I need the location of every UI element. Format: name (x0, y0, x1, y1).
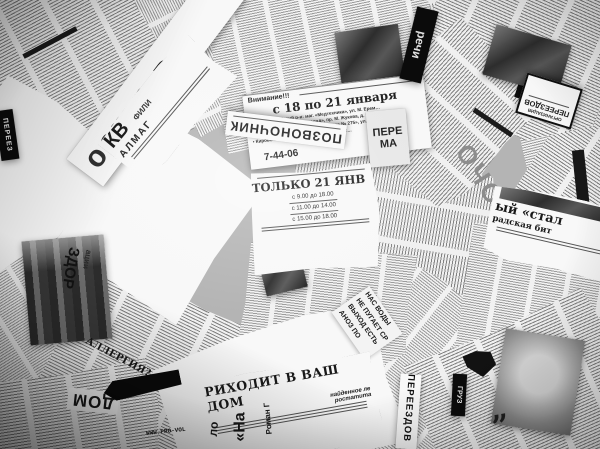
pereezdov-label: ПЕРЕЕЗДОВ (400, 374, 416, 449)
pere-ma-label: ПЕРЕ МА (366, 108, 411, 167)
tolko-ad: ТОЛЬКО 21 ЯНВ с 9.00 до 18.00 с 11.00 до… (246, 163, 385, 278)
newspaper-collage-photo: осква в КВ ФИЛИ АЛМАГ ПЕРЕЕЗ Внимание!!!… (0, 0, 600, 449)
gruz-label: ГРУЗ (455, 386, 463, 404)
pereez-tab-label: ПЕРЕЕЗ (1, 118, 13, 153)
na-text: «На (232, 412, 250, 441)
ma-text: МА (379, 137, 397, 150)
gruz-tab: ГРУЗ (451, 374, 467, 417)
rechi-label: речи (409, 30, 429, 61)
lo-text: ло (206, 421, 221, 437)
